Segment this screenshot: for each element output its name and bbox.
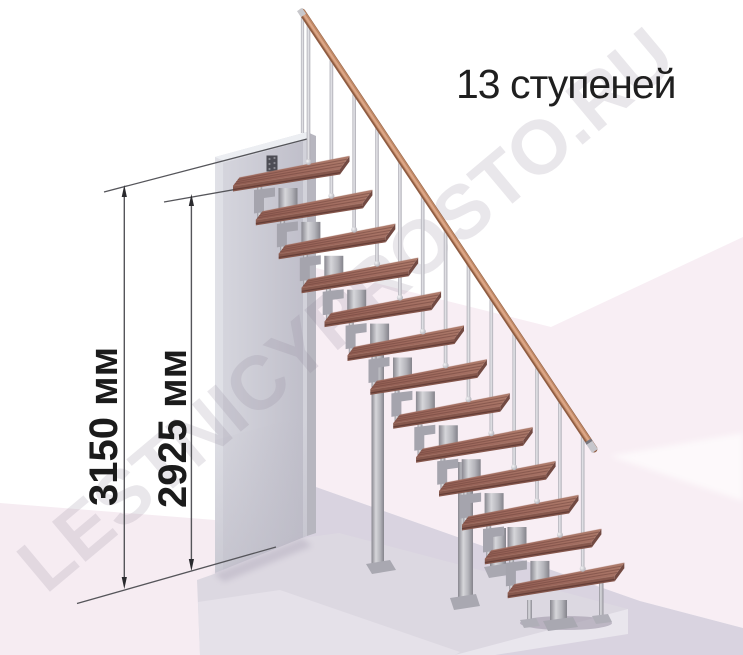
svg-text:2925 мм: 2925 мм (151, 349, 195, 508)
svg-text:3150 мм: 3150 мм (82, 347, 126, 506)
svg-text:13 ступеней: 13 ступеней (456, 61, 676, 107)
